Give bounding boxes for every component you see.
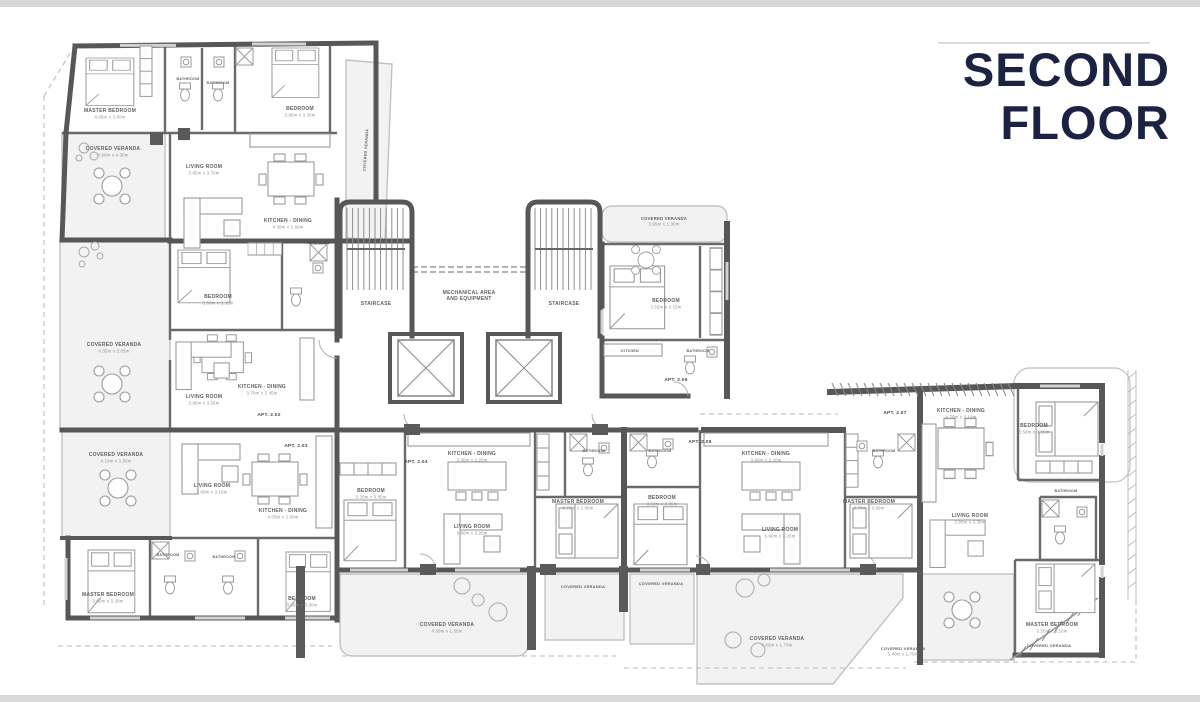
room-label: MASTER BEDROOM bbox=[1026, 622, 1078, 628]
room-label: COVERED VERANDA bbox=[87, 342, 142, 348]
room-dimension: 3.85m x 3.55m bbox=[189, 401, 220, 406]
room-label: LIVING ROOM bbox=[762, 527, 798, 533]
room-dimension: 4.30m x 2.60m bbox=[273, 225, 304, 230]
apartment-number: APT. 2.06 bbox=[688, 439, 711, 445]
room-label: LIVING ROOM bbox=[952, 513, 988, 519]
room-dimension: 3.60m x 3.10m bbox=[197, 490, 228, 495]
room-label: MASTER BEDROOM bbox=[84, 108, 136, 114]
room-label: LIVING ROOM bbox=[186, 164, 222, 170]
room-dimension: 4.10m x 3.50m bbox=[101, 459, 132, 464]
room-label: STAIRCASE bbox=[549, 301, 580, 307]
room-dimension: 4.05m x 3.60m bbox=[95, 115, 126, 120]
room-dimension: 3.60m x 3.20m bbox=[93, 599, 124, 604]
room-dimension: 4.90m x 4.30m bbox=[98, 153, 129, 158]
room-label: KITCHEN - DINING bbox=[742, 451, 790, 457]
room-label: KITCHEN - DINING bbox=[264, 218, 312, 224]
apartment-number: APT. 2.03 bbox=[284, 443, 307, 449]
room-label: BATHROOM bbox=[583, 449, 606, 453]
room-label: AND EQUIPMENT bbox=[446, 296, 491, 302]
room-dimension: 3.80m x 3.30m bbox=[955, 520, 986, 525]
apartment-number: APT. 2.07 bbox=[883, 410, 906, 416]
room-dimension: 3.60m x 3.35m bbox=[203, 301, 234, 306]
apartment-number: APT. 2.01 bbox=[306, 240, 329, 246]
room-dimension: 3.90m x 3.20m bbox=[457, 531, 488, 536]
room-label: BATHROOM bbox=[213, 555, 236, 559]
room-dimension: 3.90m x 2.20m bbox=[751, 458, 782, 463]
room-dimension: 3.70m x 3.00m bbox=[854, 506, 885, 511]
room-label: KITCHEN - DINING bbox=[448, 451, 496, 457]
room-label: BEDROOM bbox=[204, 294, 232, 300]
apartment-number: APT. 2.05 bbox=[664, 377, 687, 383]
room-label: COVERED VERANDA bbox=[1027, 643, 1071, 648]
room-label: COVERED VERANDA bbox=[881, 646, 925, 651]
room-dimension: 3.85m x 3.30m bbox=[285, 113, 316, 118]
room-label: BATHROOM bbox=[687, 349, 710, 353]
room-dimension: 3.40m x 1.75m bbox=[888, 652, 919, 657]
apartment-number: APT. 2.02 bbox=[257, 412, 280, 418]
room-dimension: 3.30m x 3.05m bbox=[647, 502, 678, 507]
floor-plan-page: SECOND FLOOR bbox=[0, 0, 1200, 702]
room-dimension: 4.65m x 1.70m bbox=[762, 643, 793, 648]
room-label: BATHROOM bbox=[157, 553, 180, 557]
room-label: MASTER BEDROOM bbox=[82, 592, 134, 598]
room-dimension: 3.55m x 3.10m bbox=[1037, 629, 1068, 634]
room-label: BEDROOM bbox=[286, 106, 314, 112]
room-label: MASTER BEDROOM bbox=[843, 499, 895, 505]
room-label: BEDROOM bbox=[652, 298, 680, 304]
room-label: BATHROOM bbox=[207, 81, 230, 85]
corridor-dashed-line bbox=[412, 267, 528, 272]
room-dimension: 4.35m x 3.05m bbox=[99, 349, 130, 354]
room-label: BATHROOM bbox=[873, 449, 896, 453]
room-dimension: 3.70m x 3.00m bbox=[563, 506, 594, 511]
room-label: COVERED VERANDA bbox=[639, 581, 683, 586]
room-dimension: 3.95m x 1.30m bbox=[649, 222, 680, 227]
room-label: KITCHEN - DINING bbox=[937, 408, 985, 414]
room-dimension: 3.30m x 3.00m bbox=[287, 603, 318, 608]
room-label: COVERED VERANDA bbox=[420, 622, 475, 628]
room-label: COVERED VERANDA bbox=[641, 216, 687, 221]
room-label: BEDROOM bbox=[288, 596, 316, 602]
room-label: MASTER BEDROOM bbox=[552, 499, 604, 505]
room-label: COVERED VERANDA bbox=[561, 584, 605, 589]
room-label: LIVING ROOM bbox=[186, 394, 222, 400]
room-dimension: 3.90m x 3.20m bbox=[765, 534, 796, 539]
room-label: KITCHEN - DINING bbox=[238, 384, 286, 390]
elevator-cars bbox=[398, 340, 552, 396]
room-dimension: 4.05m x 2.00m bbox=[268, 515, 299, 520]
room-dimension: 4.75m x 3.10m bbox=[946, 415, 977, 420]
room-label: BATHROOM bbox=[649, 449, 672, 453]
room-label: KITCHEN - DINING bbox=[259, 508, 307, 514]
room-label: BATHROOM bbox=[177, 77, 200, 81]
room-label: BEDROOM bbox=[648, 495, 676, 501]
apartment-number: APT. 2.04 bbox=[404, 459, 427, 465]
room-label: LIVING ROOM bbox=[454, 524, 490, 530]
room-label: COVERED VERANDA bbox=[89, 452, 144, 458]
room-label: BEDROOM bbox=[357, 488, 385, 494]
room-dimension: 3.85m x 3.70m bbox=[189, 171, 220, 176]
floor-plan-drawing: MASTER BEDROOM4.05m x 3.60mBATHROOMBATHR… bbox=[0, 0, 1200, 702]
room-dimension: 3.30m x 3.05m bbox=[356, 495, 387, 500]
room-dimension: 3.55m x 3.15m bbox=[651, 305, 682, 310]
room-dimension: 3.90m x 2.20m bbox=[457, 458, 488, 463]
room-dimension: 4.30m x 1.55m bbox=[432, 629, 463, 634]
room-label: BEDROOM bbox=[1020, 423, 1048, 429]
room-label: KITCHEN bbox=[621, 349, 639, 353]
room-label: STAIRCASE bbox=[361, 301, 392, 307]
room-dimension: 3.50m x 3.15m bbox=[1019, 430, 1050, 435]
room-dimension: 3.70m x 2.45m bbox=[247, 391, 278, 396]
room-label: BATHROOM bbox=[1055, 489, 1078, 493]
room-label: LIVING ROOM bbox=[194, 483, 230, 489]
room-label: COVERED VERANDA bbox=[750, 636, 805, 642]
room-label: COVERED VERANDA bbox=[86, 146, 141, 152]
